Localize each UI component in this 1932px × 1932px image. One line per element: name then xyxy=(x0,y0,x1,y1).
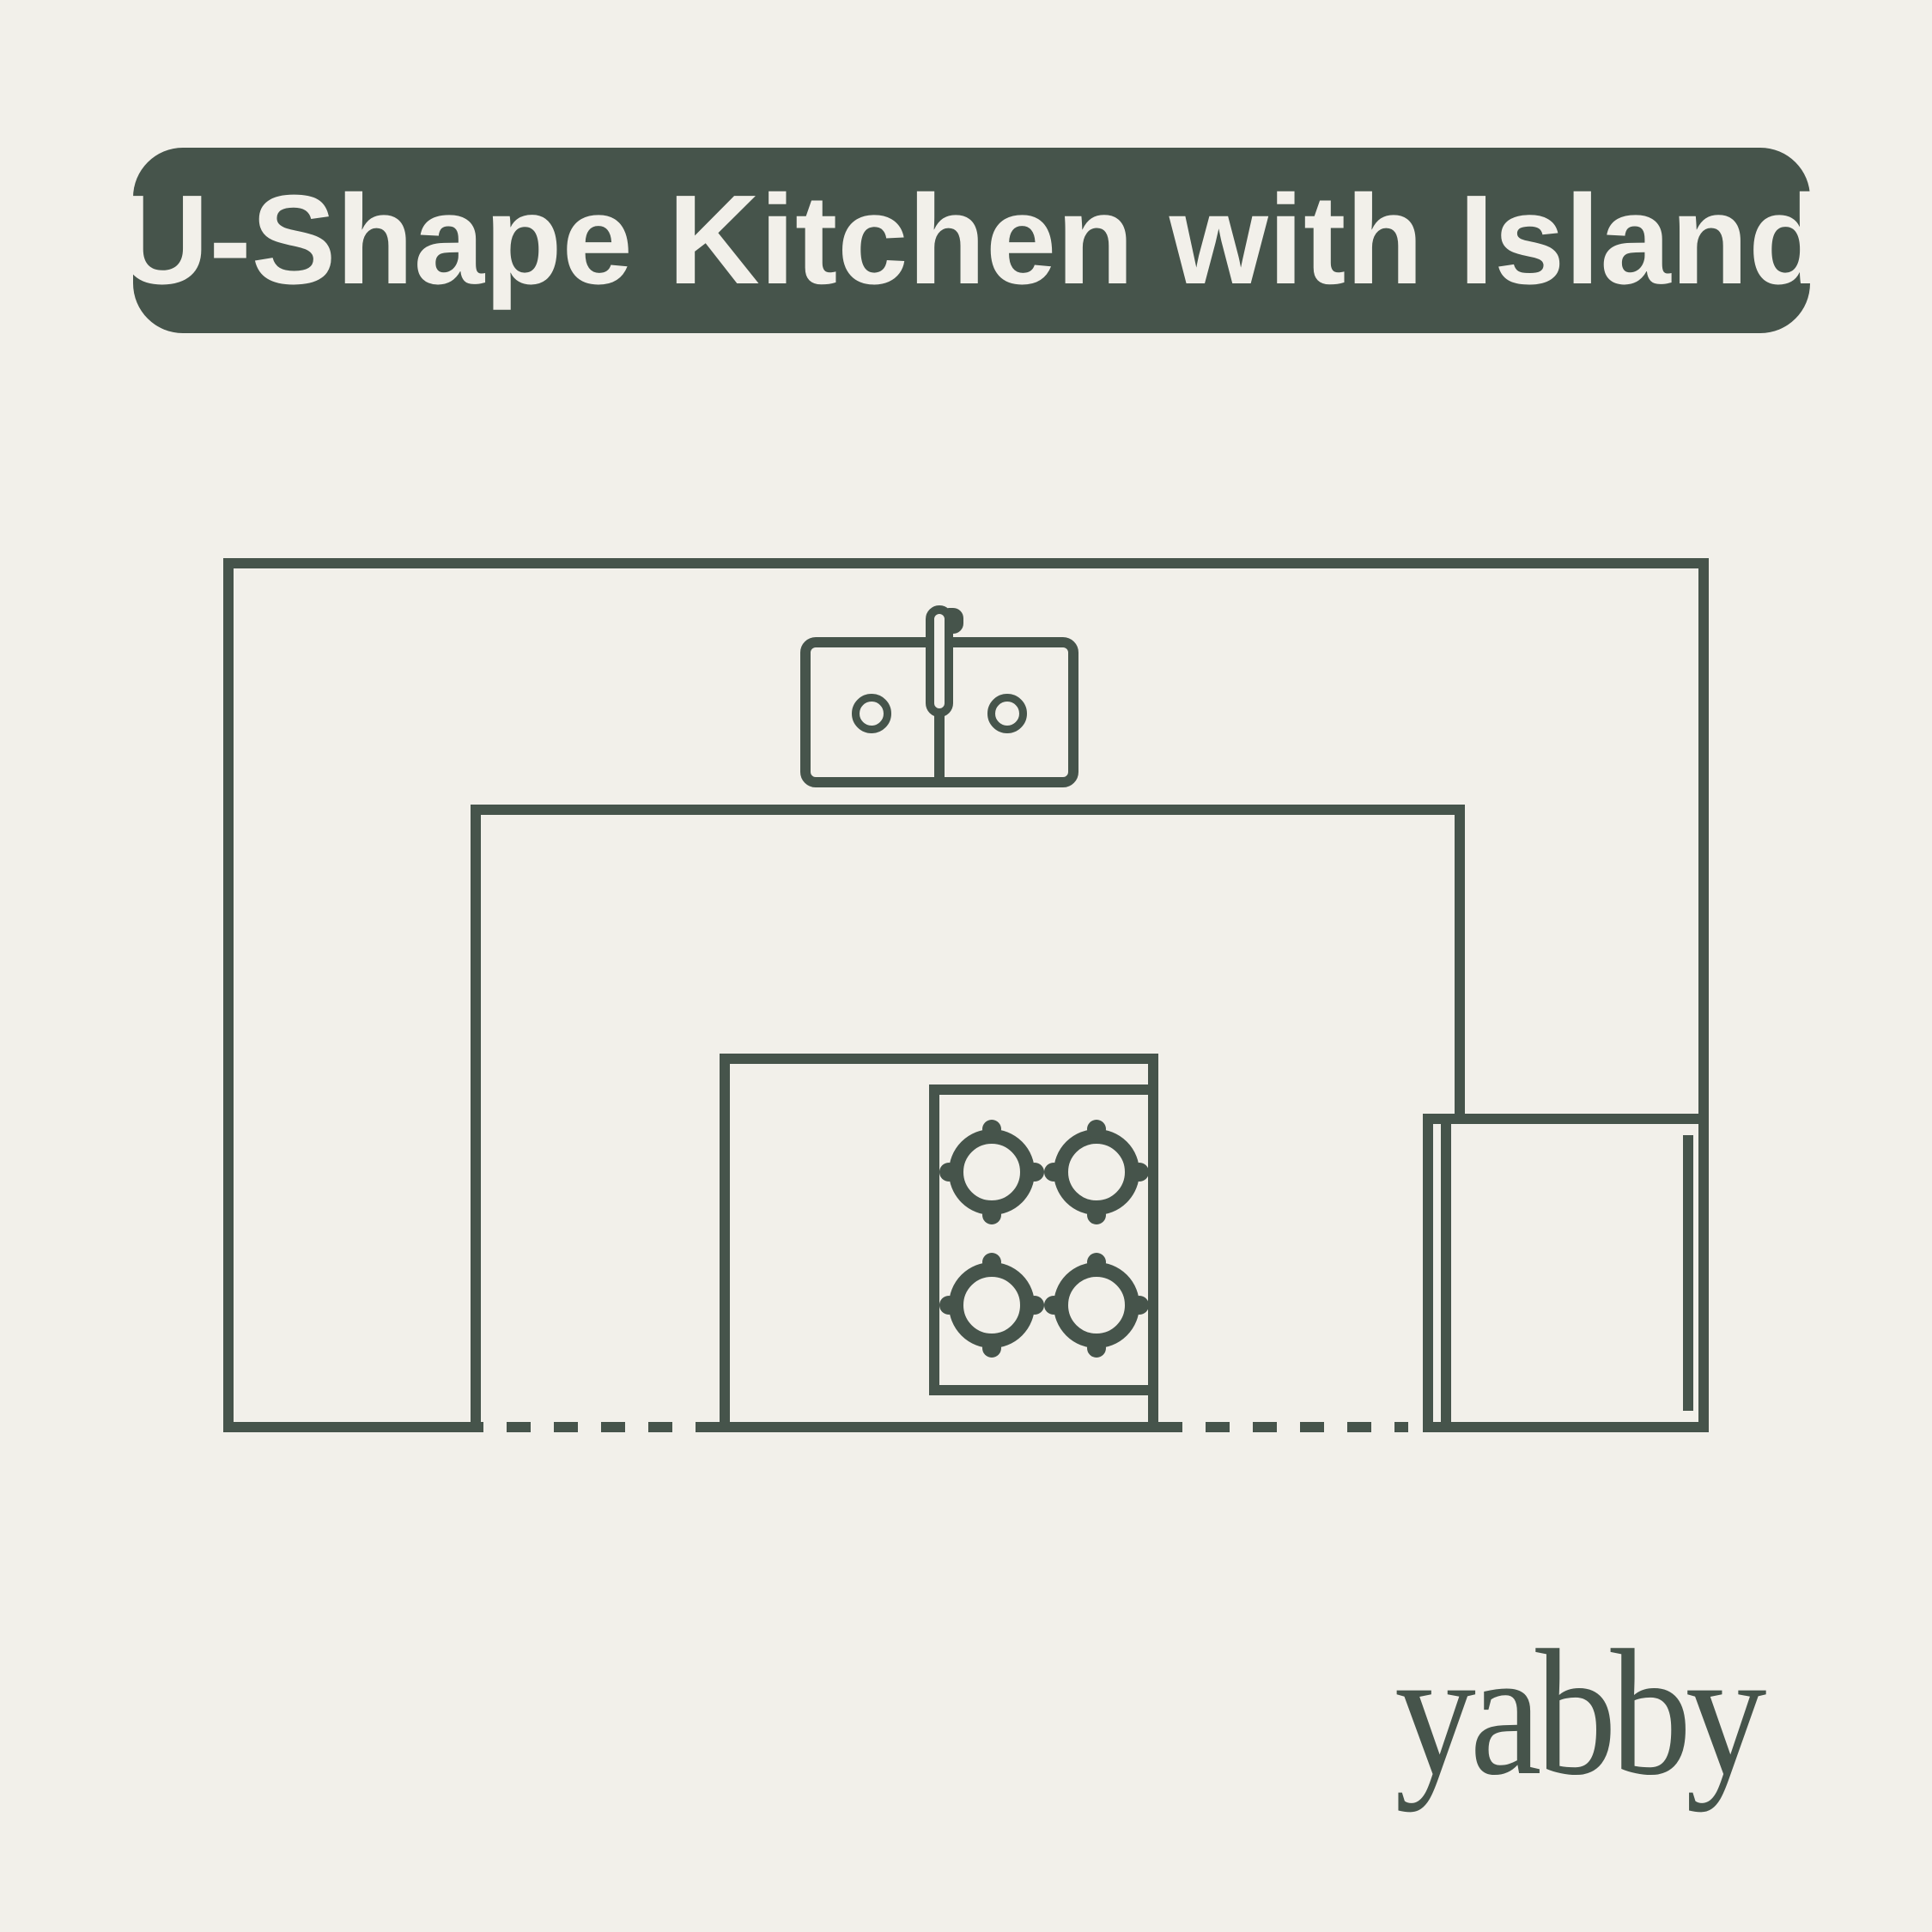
counter-outer-left-line xyxy=(223,558,234,1432)
burner-icon xyxy=(1054,1262,1139,1348)
counter-bottom-left-line xyxy=(223,1422,483,1432)
burner-dot xyxy=(982,1206,1001,1224)
burner-ring xyxy=(949,1262,1035,1348)
burner-dot xyxy=(1087,1120,1106,1139)
burner-dot xyxy=(939,1163,958,1182)
faucet-spout-icon xyxy=(946,608,963,634)
burner-icon xyxy=(1054,1129,1139,1215)
burner-ring xyxy=(949,1129,1035,1215)
burner-ring xyxy=(1054,1129,1139,1215)
refrigerator-inner-left-line xyxy=(1441,1124,1451,1422)
burner-dot xyxy=(1087,1253,1106,1272)
burner-dot xyxy=(939,1296,958,1315)
burner-dot xyxy=(1087,1206,1106,1224)
counter-inner-top-line xyxy=(471,805,1465,815)
brand-logo: yabby xyxy=(1394,1623,1760,1803)
counter-inner-right-line xyxy=(1455,805,1465,1124)
page-title: U-Shape Kitchen with Island xyxy=(118,167,1826,313)
counter-inner-left-line xyxy=(471,805,481,1432)
counter-outer-top-line xyxy=(223,558,1709,568)
burner-dot xyxy=(982,1120,1001,1139)
title-banner: U-Shape Kitchen with Island xyxy=(133,148,1810,333)
burner-dot xyxy=(1130,1296,1149,1315)
dashed-floor-line-right xyxy=(1158,1422,1408,1432)
sink-drain-left-icon xyxy=(852,694,891,733)
refrigerator-outline xyxy=(1423,1114,1709,1432)
burner-dot xyxy=(1130,1163,1149,1182)
burner-dot xyxy=(1044,1296,1063,1315)
burner-dot xyxy=(1025,1163,1044,1182)
burner-dot xyxy=(982,1339,1001,1358)
burner-dot xyxy=(1044,1163,1063,1182)
refrigerator-inner-right-line xyxy=(1683,1135,1693,1411)
burner-icon xyxy=(949,1129,1035,1215)
burner-ring xyxy=(1054,1262,1139,1348)
sink-drain-right-icon xyxy=(987,694,1027,733)
burner-icon xyxy=(949,1262,1035,1348)
burner-dot xyxy=(1087,1339,1106,1358)
burner-dot xyxy=(1025,1296,1044,1315)
dashed-floor-line-left xyxy=(483,1422,720,1432)
burner-dot xyxy=(982,1253,1001,1272)
infographic-canvas: U-Shape Kitchen with Island xyxy=(0,0,1932,1932)
